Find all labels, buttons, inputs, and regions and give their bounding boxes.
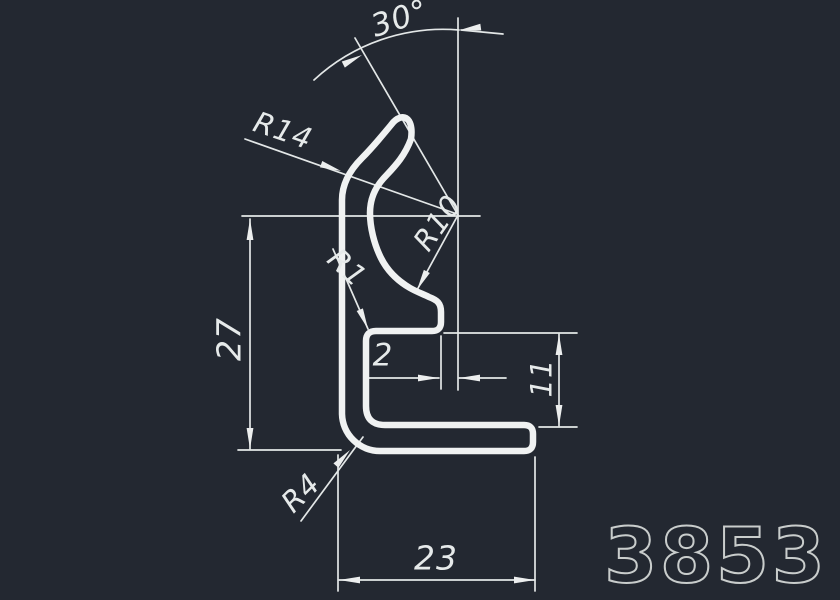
profile-outline <box>342 117 533 451</box>
dim-11-arrow-top <box>556 334 563 355</box>
dim-2-arrow-left <box>418 375 439 382</box>
dim-27-arrow-top <box>247 219 254 240</box>
cad-drawing-canvas: 30° R14 R10 R1 R4 27 2 11 23 3853 <box>0 0 840 600</box>
drawing-geometry <box>0 0 840 600</box>
angle-reference-line <box>355 38 458 215</box>
dim-23-label: 23 <box>414 542 458 575</box>
angle-arrow-tail <box>461 30 503 34</box>
dim-11-label: 11 <box>528 359 557 398</box>
dim-27-label: 27 <box>213 317 246 361</box>
dim-23-arrow-left <box>339 577 360 584</box>
dim-27-arrow-bottom <box>247 428 254 449</box>
dim-2-arrow-right <box>459 375 480 382</box>
part-number: 3853 <box>604 518 828 594</box>
dim-11-arrow-bottom <box>556 405 563 426</box>
r1-arrowhead <box>357 308 371 330</box>
dim-2-label: 2 <box>373 341 394 372</box>
angle-arrow-left <box>342 52 364 68</box>
dim-23-arrow-right <box>514 577 535 584</box>
